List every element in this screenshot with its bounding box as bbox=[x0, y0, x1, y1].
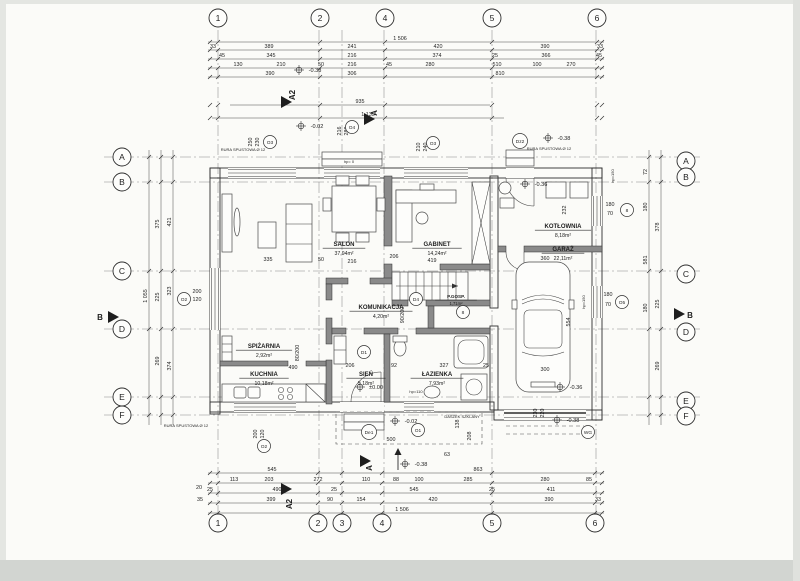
level-value: -0.38 bbox=[309, 68, 322, 74]
grid-bubble-5: 5 bbox=[483, 514, 501, 532]
dimension-value: 335 bbox=[264, 257, 273, 263]
grid-bubble-label: 2 bbox=[316, 518, 321, 528]
dimension-value: 25 bbox=[207, 487, 213, 493]
grid-bubble-1: 1 bbox=[209, 9, 227, 27]
dimension-value: 25 bbox=[483, 363, 489, 369]
dimension-value: 25 bbox=[492, 53, 498, 59]
room-name: SALON bbox=[334, 242, 355, 248]
dimension-value: 250 bbox=[248, 138, 254, 147]
marker-O3: O3 bbox=[427, 137, 440, 150]
dimension-value: 25 bbox=[331, 487, 337, 493]
section-label: A2 bbox=[288, 89, 297, 100]
marker-De1: De1 bbox=[362, 425, 377, 440]
dimension-value: 375 bbox=[155, 220, 161, 229]
room-name: KUCHNIA bbox=[250, 372, 278, 378]
scan-right-edge bbox=[793, 0, 800, 581]
dimension-value: 20 bbox=[196, 485, 202, 491]
dimension-value: 390 bbox=[541, 44, 550, 50]
grid-bubble-2: 2 bbox=[311, 9, 329, 27]
dimension-value: 70 bbox=[605, 302, 611, 308]
room-name: KOMUNIKACJA bbox=[359, 305, 405, 311]
marker-D4: D4 bbox=[410, 293, 423, 306]
room-name: SPIŻARNIA bbox=[248, 343, 281, 350]
note-text: DASZEK SZKLANY bbox=[444, 414, 480, 419]
dimension-value: 180 bbox=[643, 304, 649, 313]
dimension-value: 225 bbox=[655, 300, 661, 309]
dimension-value: 80/200 bbox=[295, 345, 301, 362]
dimension-value: 35 bbox=[197, 497, 203, 503]
grid-bubble-label: 5 bbox=[490, 13, 495, 23]
room-area: 5,18m² bbox=[358, 381, 374, 387]
marker-label: 8 bbox=[462, 310, 465, 316]
level-value: -0.02 bbox=[311, 124, 324, 130]
section-label: B bbox=[687, 311, 693, 320]
grid-bubble-label: 4 bbox=[383, 13, 388, 23]
dimension-value: 269 bbox=[155, 357, 161, 366]
dimension-value: 210 bbox=[416, 143, 422, 152]
room-area: 4,20m² bbox=[373, 314, 389, 320]
room-name: ŁAZIENKA bbox=[422, 372, 453, 378]
grid-bubble-label: C bbox=[119, 266, 125, 276]
dimension-value: 206 bbox=[346, 363, 355, 369]
window-O3-left bbox=[228, 168, 296, 178]
dimension-value: 180 bbox=[643, 203, 649, 212]
dimension-value: 490 bbox=[289, 365, 298, 371]
level-value: -0.38 bbox=[415, 462, 428, 468]
dimension-value: 581 bbox=[643, 256, 649, 265]
room-name: GABINET bbox=[424, 242, 451, 248]
grid-bubble-label: A bbox=[119, 152, 125, 162]
room-area: 2,92m² bbox=[256, 353, 272, 359]
dimension-value: 411 bbox=[547, 487, 556, 493]
note-text: hp= 0 bbox=[344, 159, 355, 164]
note-text: hp=150 bbox=[610, 169, 615, 183]
washbasin bbox=[424, 386, 440, 398]
marker-label: O2 bbox=[261, 444, 268, 450]
dimension-value: 280 bbox=[426, 62, 435, 68]
terrace-door-O4 bbox=[324, 168, 380, 178]
marker-label: WG bbox=[584, 430, 593, 436]
dimension-value: 154 bbox=[357, 497, 366, 503]
dimension-value: 306 bbox=[348, 71, 357, 77]
marker-label: O3 bbox=[267, 140, 274, 146]
marker-O4: O4 bbox=[346, 121, 359, 134]
sink bbox=[234, 387, 246, 398]
dimension-value: 230 bbox=[255, 138, 261, 147]
grid-bubble-label: D bbox=[683, 327, 689, 337]
dimension-value: 33 bbox=[597, 44, 603, 50]
dimension-value: 345 bbox=[267, 53, 276, 59]
dimension-value: 1 506 bbox=[393, 36, 407, 42]
dimension-value: 232 bbox=[562, 206, 568, 215]
car-plate bbox=[531, 382, 555, 387]
dimension-value: 45 bbox=[219, 53, 225, 59]
sofa bbox=[286, 204, 312, 262]
room-area: 22,11m² bbox=[554, 256, 573, 262]
dimension-value: 100 bbox=[533, 62, 542, 68]
grid-bubble-D: D bbox=[677, 323, 695, 341]
marker-8: 8 bbox=[621, 204, 634, 217]
dimension-value: 113 bbox=[230, 477, 239, 483]
tv bbox=[234, 208, 240, 236]
grid-bubble-6: 6 bbox=[586, 514, 604, 532]
dimension-value: 180 bbox=[604, 292, 613, 298]
dimension-value: 390 bbox=[266, 71, 275, 77]
dimension-value: 327 bbox=[440, 363, 449, 369]
dimension-value: 100 bbox=[415, 477, 424, 483]
marker-label: O3 bbox=[430, 141, 437, 147]
grid-bubble-E: E bbox=[113, 388, 131, 406]
dimension-value: 25 bbox=[489, 487, 495, 493]
entry-step bbox=[344, 414, 384, 422]
window-O1-bottom bbox=[404, 402, 434, 412]
note-text: RURA SPUSTOWA Ø 12 bbox=[221, 147, 266, 152]
dimension-value: 500 bbox=[387, 437, 396, 443]
dimension-value: 45 bbox=[596, 53, 602, 59]
dimension-value: 545 bbox=[410, 487, 419, 493]
section-label: B bbox=[97, 313, 103, 322]
dimension-value: 225 bbox=[155, 293, 161, 302]
washer bbox=[461, 374, 487, 400]
section-label: A bbox=[370, 110, 379, 116]
pantry-shelves bbox=[222, 336, 232, 361]
level-value: -0.36 bbox=[570, 385, 583, 391]
level-value: -0.38 bbox=[558, 136, 571, 142]
level-value: -0.36 bbox=[535, 182, 548, 188]
grid-bubble-label: 2 bbox=[318, 13, 323, 23]
room-area: 37,94m² bbox=[334, 251, 353, 257]
note-text: RURA SPUSTOWA Ø 12 bbox=[164, 423, 209, 428]
dimension-value: 200 bbox=[193, 289, 202, 295]
dimension-value: 420 bbox=[434, 44, 443, 50]
dimension-value: 360 bbox=[541, 256, 550, 262]
dimension-value: 130 bbox=[234, 62, 243, 68]
marker-label: D4 bbox=[413, 297, 419, 303]
dimension-value: 1 055 bbox=[143, 289, 149, 303]
grid-bubble-label: 6 bbox=[595, 13, 600, 23]
grid-bubble-label: D bbox=[119, 324, 125, 334]
dimension-value: 220 bbox=[540, 409, 546, 418]
grid-bubble-B: B bbox=[677, 168, 695, 186]
dimension-value: 216 bbox=[337, 127, 343, 136]
dimension-value: 810 bbox=[496, 71, 505, 77]
grid-bubble-A: A bbox=[113, 148, 131, 166]
dimension-value: 138 bbox=[455, 420, 461, 429]
marker-label: O5 bbox=[619, 300, 626, 306]
dimension-value: 216 bbox=[348, 259, 357, 265]
marker-label: O2 bbox=[181, 297, 188, 303]
grid-bubble-label: 5 bbox=[490, 518, 495, 528]
marker-label: O1 bbox=[415, 428, 422, 434]
marker-label: 8 bbox=[626, 208, 629, 214]
dimension-value: 120 bbox=[260, 430, 266, 439]
grid-bubble-label: B bbox=[683, 172, 689, 182]
grid-bubble-C: C bbox=[113, 262, 131, 280]
window-O3-right bbox=[404, 168, 468, 178]
grid-bubble-1: 1 bbox=[209, 514, 227, 532]
note-text: RURA SPUSTOWA Ø 12 bbox=[527, 146, 572, 151]
marker-O1: O1 bbox=[412, 424, 425, 437]
dimension-value: 90 bbox=[327, 497, 333, 503]
grid-bubble-label: F bbox=[119, 410, 124, 420]
dimension-value: 272 bbox=[314, 477, 323, 483]
dimension-value: 216 bbox=[348, 62, 357, 68]
dimension-value: 323 bbox=[167, 287, 173, 296]
dimension-value: 545 bbox=[268, 467, 277, 473]
dimension-value: 216 bbox=[348, 53, 357, 59]
grid-bubble-label: 3 bbox=[340, 518, 345, 528]
dimension-value: 33 bbox=[595, 497, 601, 503]
marker-O5: O5 bbox=[616, 296, 629, 309]
grid-bubble-4: 4 bbox=[373, 514, 391, 532]
marker-O3: O3 bbox=[264, 136, 277, 149]
room-area: 8,18m² bbox=[555, 233, 571, 239]
grid-bubble-3: 3 bbox=[333, 514, 351, 532]
grid-bubble-label: A bbox=[683, 156, 689, 166]
dimension-value: 399 bbox=[267, 497, 276, 503]
note-text: hp=150 bbox=[581, 295, 586, 309]
dimension-value: 203 bbox=[265, 477, 274, 483]
dimension-value: 270 bbox=[567, 62, 576, 68]
dimension-value: 92 bbox=[391, 363, 397, 369]
dimension-value: 300 bbox=[541, 367, 550, 373]
dimension-value: 510 bbox=[493, 62, 502, 68]
dimension-value: 180 bbox=[606, 202, 615, 208]
dimension-value: 33 bbox=[210, 44, 216, 50]
dimension-value: 45 bbox=[386, 62, 392, 68]
grid-bubble-label: 1 bbox=[216, 518, 221, 528]
toilet bbox=[394, 340, 406, 356]
grid-bubble-B: B bbox=[113, 173, 131, 191]
marker-WG: WG bbox=[582, 426, 595, 439]
dimension-value: 421 bbox=[167, 218, 173, 227]
dimension-value: 230 bbox=[533, 409, 539, 418]
dimension-value: 863 bbox=[474, 467, 483, 473]
dimension-value: 72 bbox=[643, 169, 649, 175]
dimension-value: 374 bbox=[167, 362, 173, 371]
room-area: 10,18m² bbox=[254, 381, 273, 387]
dimension-value: 200 bbox=[253, 430, 259, 439]
dimension-value: 554 bbox=[566, 318, 572, 327]
tv-cabinet bbox=[222, 194, 232, 252]
grid-bubble-4: 4 bbox=[376, 9, 394, 27]
grid-bubble-A: A bbox=[677, 152, 695, 170]
boiler bbox=[546, 182, 566, 198]
marker-label: De1 bbox=[365, 430, 374, 436]
room-name: KOTŁOWNIA bbox=[545, 224, 583, 230]
dimension-value: 269 bbox=[655, 362, 661, 371]
sien-closet bbox=[334, 336, 346, 364]
dimension-value: 63 bbox=[444, 452, 450, 458]
desk-chair bbox=[416, 212, 428, 224]
room-name: P.GOSP. bbox=[447, 294, 465, 299]
dimension-value: 490 bbox=[273, 487, 282, 493]
marker-8: 8 bbox=[457, 306, 470, 319]
dimension-value: 241 bbox=[348, 44, 357, 50]
grid-bubble-label: 6 bbox=[593, 518, 598, 528]
duct-shaft bbox=[472, 182, 490, 264]
grid-bubble-label: E bbox=[683, 396, 689, 406]
marker-label: O4 bbox=[349, 125, 356, 131]
room-area: 1,71m² bbox=[449, 301, 463, 306]
grid-bubble-2: 2 bbox=[309, 514, 327, 532]
window-O2-bottom bbox=[234, 402, 296, 412]
marker-Dz2: Dz2 bbox=[513, 134, 528, 149]
car-mirror bbox=[512, 300, 517, 309]
dimension-value: 419 bbox=[428, 258, 437, 264]
grid-bubble-label: B bbox=[119, 177, 125, 187]
floor-plan-page: 12456123456ABCDEFABCDEF 1 50633389241420… bbox=[0, 0, 800, 581]
garage-window-O5 bbox=[592, 286, 602, 318]
tank bbox=[570, 182, 588, 198]
window-O2-left bbox=[210, 268, 220, 330]
grid-bubble-5: 5 bbox=[483, 9, 501, 27]
marker-label: Dz2 bbox=[516, 139, 525, 145]
dimension-value: 120 bbox=[193, 297, 202, 303]
marker-D1: D1 bbox=[358, 346, 371, 359]
kotlownia-window bbox=[592, 196, 602, 226]
room-name: SIEŃ bbox=[359, 370, 373, 378]
grid-bubble-label: E bbox=[119, 392, 125, 402]
grid-bubble-F: F bbox=[113, 406, 131, 424]
dimension-value: 285 bbox=[464, 477, 473, 483]
marker-O2: O2 bbox=[258, 440, 271, 453]
dimension-value: 378 bbox=[655, 223, 661, 232]
dimension-value: 206 bbox=[390, 254, 399, 260]
note-text: hp=110 bbox=[409, 389, 423, 394]
room-name: GARAŻ bbox=[552, 246, 574, 253]
dimension-value: 85 bbox=[586, 477, 592, 483]
dimension-value: 935 bbox=[356, 99, 365, 105]
dimension-value: 420 bbox=[429, 497, 438, 503]
dimension-value: 366 bbox=[542, 53, 551, 59]
dimension-value: 88 bbox=[393, 477, 399, 483]
grid-bubble-D: D bbox=[113, 320, 131, 338]
grid-bubble-C: C bbox=[677, 265, 695, 283]
section-label: A2 bbox=[285, 498, 294, 509]
room-area: 14,24m² bbox=[427, 251, 446, 257]
dimension-value: 208 bbox=[467, 432, 473, 441]
dimension-value: 110 bbox=[362, 477, 371, 483]
grid-bubble-label: 1 bbox=[216, 13, 221, 23]
grid-bubble-label: F bbox=[683, 411, 688, 421]
dimension-value: 390 bbox=[545, 497, 554, 503]
grid-bubble-label: C bbox=[683, 269, 689, 279]
side-entry-step bbox=[506, 150, 534, 158]
dimension-value: 280 bbox=[541, 477, 550, 483]
grid-bubble-label: 4 bbox=[380, 518, 385, 528]
coffee-table bbox=[258, 222, 276, 248]
dining-table bbox=[332, 186, 376, 232]
dimension-value: 1 506 bbox=[395, 507, 409, 513]
room-area: 7,93m² bbox=[429, 381, 445, 387]
dimension-value: 374 bbox=[433, 53, 442, 59]
floor-plan-drawing: 12456123456ABCDEFABCDEF 1 50633389241420… bbox=[0, 0, 800, 581]
marker-O2: O2 bbox=[178, 293, 191, 306]
marker-label: D1 bbox=[361, 350, 367, 356]
grid-bubble-6: 6 bbox=[588, 9, 606, 27]
level-value: -0.38 bbox=[567, 418, 580, 424]
scan-bottom-shadow bbox=[0, 560, 800, 581]
dimension-value: 389 bbox=[265, 44, 274, 50]
grid-bubble-F: F bbox=[677, 407, 695, 425]
section-label: A bbox=[365, 465, 374, 471]
dimension-value: 50 bbox=[318, 257, 324, 263]
dimension-value: 70 bbox=[607, 211, 613, 217]
dimension-value: 210 bbox=[277, 62, 286, 68]
terrace-step bbox=[322, 152, 382, 159]
